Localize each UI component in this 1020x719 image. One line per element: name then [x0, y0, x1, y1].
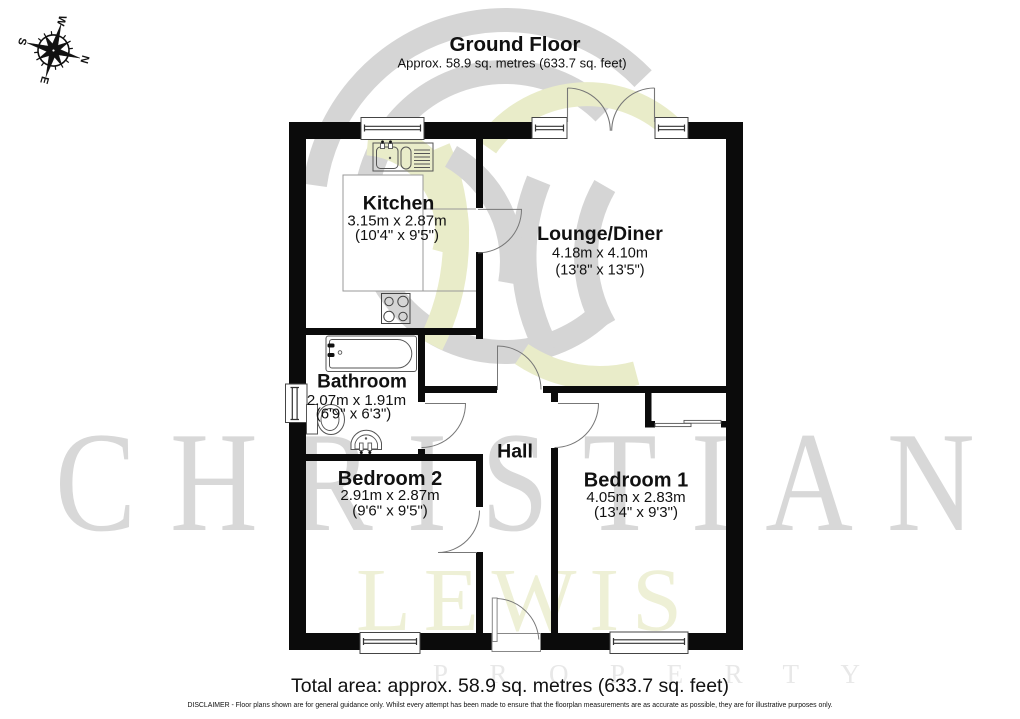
svg-text:CHRISTIAN: CHRISTIAN: [55, 403, 975, 561]
svg-text:(6'9" x 6'3"): (6'9" x 6'3"): [316, 406, 392, 423]
svg-text:DISCLAIMER - Floor plans show: DISCLAIMER - Floor plans shown are for g…: [187, 702, 832, 709]
svg-text:Total area: approx. 58.9 sq. m: Total area: approx. 58.9 sq. metres (633…: [291, 675, 729, 697]
svg-text:(10'4" x 9'5"): (10'4" x 9'5"): [355, 227, 439, 244]
svg-text:(13'8" x 13'5"): (13'8" x 13'5"): [555, 263, 644, 279]
svg-text:Kitchen: Kitchen: [363, 193, 435, 215]
svg-text:(9'6" x 9'5"): (9'6" x 9'5"): [352, 503, 428, 520]
svg-text:4.18m x 4.10m: 4.18m x 4.10m: [552, 246, 648, 262]
svg-text:Approx. 58.9 sq. metres (633.7: Approx. 58.9 sq. metres (633.7 sq. feet): [397, 56, 626, 71]
svg-text:(13'4" x 9'3"): (13'4" x 9'3"): [594, 504, 678, 521]
svg-text:Ground Floor: Ground Floor: [450, 33, 581, 56]
svg-text:Bathroom: Bathroom: [317, 372, 407, 393]
svg-text:Hall: Hall: [497, 441, 533, 463]
svg-text:Lounge/Diner: Lounge/Diner: [537, 223, 663, 245]
svg-text:2.91m x 2.87m: 2.91m x 2.87m: [340, 487, 439, 504]
